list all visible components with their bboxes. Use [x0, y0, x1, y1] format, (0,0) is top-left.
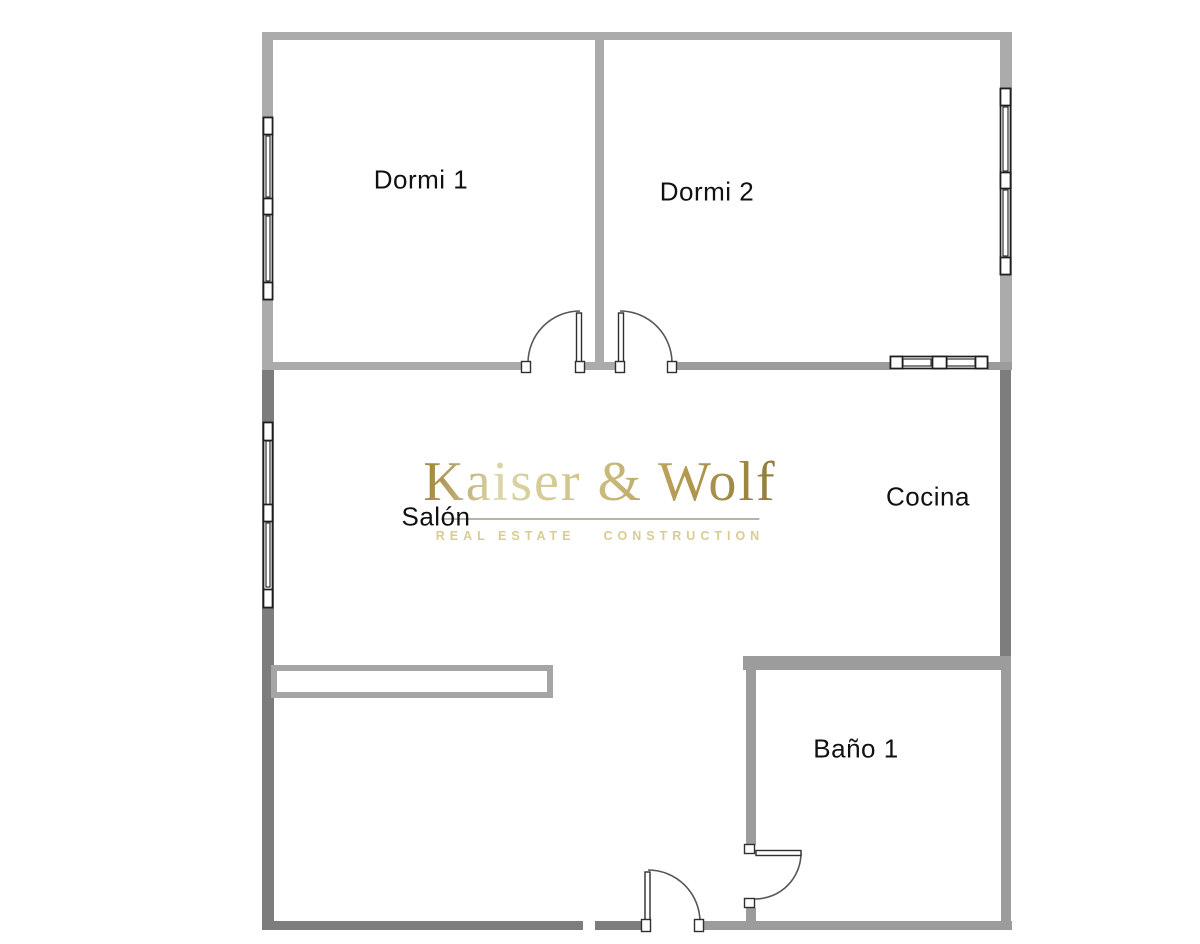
door-leaf — [645, 872, 650, 920]
window-cap — [264, 199, 273, 215]
brand-name: Kaiser & Wolf — [423, 452, 776, 514]
dormi-1-left-window — [264, 118, 273, 300]
wall-bottom-right — [704, 921, 1012, 930]
floorplan-canvas: Kaiser & Wolf REAL ESTATE CONSTRUCTION D… — [0, 0, 1200, 944]
door-leaf — [577, 313, 582, 362]
brand-rule — [441, 518, 759, 520]
wall-top — [263, 32, 1012, 40]
cocina-top-window — [891, 357, 988, 369]
dormi-1-door — [522, 311, 585, 373]
wall-mid-left — [262, 362, 528, 370]
wall-bano-left-lower — [746, 908, 756, 922]
window-cap — [264, 590, 273, 608]
wall-bano-left-upper — [746, 670, 756, 845]
door-jamb — [695, 920, 704, 932]
window-cap — [933, 357, 947, 369]
wall-cocina-bottom — [743, 656, 1011, 670]
door-jamb — [668, 362, 677, 373]
wall-bottom-left-a — [263, 921, 583, 930]
door-jamb — [522, 362, 531, 373]
window-cap — [264, 505, 273, 522]
brand-watermark: Kaiser & Wolf REAL ESTATE CONSTRUCTION — [423, 452, 776, 543]
window-cap — [1001, 258, 1011, 275]
salon-partition-counter — [274, 668, 550, 695]
salon-left-window — [264, 423, 273, 608]
bano-door — [745, 845, 802, 908]
door-leaf — [756, 851, 801, 856]
room-label-dormi-2: Dormi 2 — [660, 177, 755, 208]
room-label-bano-1: Baño 1 — [813, 734, 898, 765]
door-jamb — [616, 362, 625, 373]
door-jamb — [576, 362, 585, 373]
wall-bedroom-divider — [595, 38, 604, 367]
door-jamb — [745, 899, 755, 908]
window-cap — [1001, 89, 1011, 106]
wall-mid-right — [672, 362, 890, 370]
door-jamb — [642, 920, 651, 932]
wall-mid-right-end — [988, 362, 1012, 370]
wall-right-middle — [1000, 368, 1011, 662]
window-cap — [264, 118, 273, 135]
wall-bottom-left-b — [595, 921, 641, 930]
window-cap — [264, 423, 273, 441]
tagline-construction: CONSTRUCTION — [604, 529, 765, 543]
room-label-salon: Salón — [402, 502, 471, 533]
door-jamb — [745, 845, 755, 854]
brand-tagline: REAL ESTATE CONSTRUCTION — [436, 529, 764, 543]
dormi-2-right-window — [1001, 89, 1011, 275]
door-leaf — [619, 313, 624, 362]
window-cap — [891, 357, 903, 369]
entrance-door — [642, 870, 704, 932]
window-cap — [264, 283, 273, 300]
room-label-dormi-1: Dormi 1 — [374, 165, 469, 196]
dormi-2-door — [616, 311, 677, 373]
wall-mid-center — [580, 362, 620, 370]
window-cap — [976, 357, 988, 369]
room-label-cocina: Cocina — [886, 482, 970, 513]
window-cap — [1001, 173, 1011, 189]
wall-right-lower — [1001, 662, 1011, 928]
